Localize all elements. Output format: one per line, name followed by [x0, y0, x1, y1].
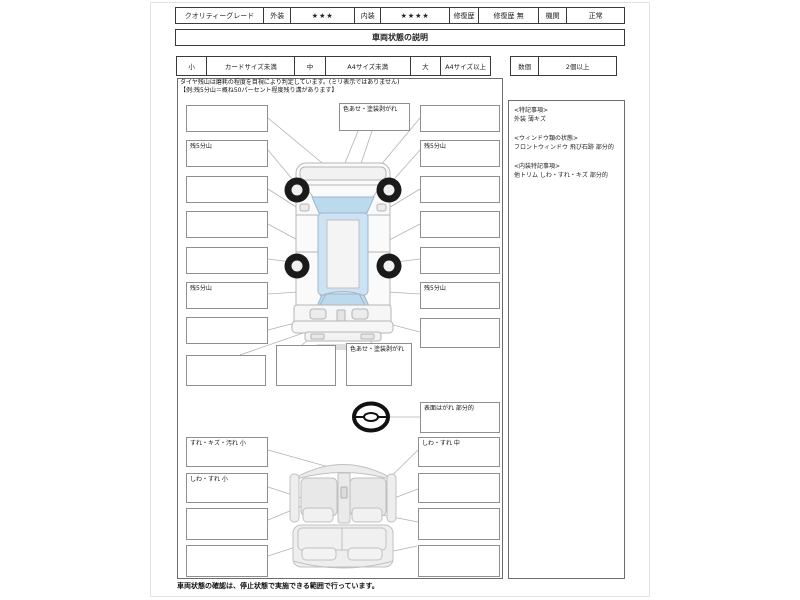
exterior-bottom-paint-box: 色あせ・塗装剥がれ — [346, 343, 412, 386]
special-notes-panel: <特記事項> 外装 薄キズ <ウィンドウ類の状態> フロントウィンドウ 飛び石跡… — [508, 100, 625, 579]
interior-right-box-3 — [418, 508, 500, 540]
footer-note: 車両状態の確認は、停止状態で実施できる範囲で行っています。 — [177, 581, 379, 591]
legend-large-desc: A4サイズ以上 — [441, 57, 490, 75]
size-legend: 小 カードサイズ未満 中 A4サイズ未満 大 A4サイズ以上 — [176, 56, 491, 76]
interior-left-box-4 — [186, 545, 268, 577]
notes-section-title: <特記事項> — [514, 107, 619, 115]
engine-label: 機関 — [539, 8, 567, 23]
exterior-label: 外装 — [264, 8, 291, 23]
page-title: 車両状態の説明 — [175, 29, 625, 46]
exterior-top-paint-box: 色あせ・塗装剥がれ — [339, 103, 410, 131]
repair-history-value: 修復歴 無 — [479, 8, 539, 23]
exterior-left-box-7 — [186, 317, 268, 344]
exterior-bottom-left-box — [186, 355, 266, 386]
legend-medium-desc: A4サイズ未満 — [326, 57, 411, 75]
legend-small-desc: カードサイズ未満 — [207, 57, 295, 75]
interior-left-box-2: しわ・すれ 小 — [186, 473, 268, 503]
notes-section-body: 他トリム しわ・すれ・キズ 部分的 — [514, 172, 619, 180]
notes-section-title: <ウィンドウ類の状態> — [514, 135, 619, 143]
exterior-right-box-6: 残5分山 — [420, 282, 500, 309]
exterior-right-box-1 — [420, 105, 500, 132]
exterior-rating: ★★★ — [291, 8, 355, 23]
interior-left-box-3 — [186, 508, 268, 540]
repair-history-label: 修復歴 — [450, 8, 479, 23]
notes-section-body: フロントウィンドウ 飛び石跡 部分的 — [514, 144, 619, 152]
tire-note-line1: タイヤ残山は磨耗の程度を目視により判定しています。(ミリ表示ではありません) — [180, 79, 500, 87]
interior-right-box-1: しわ・すれ 中 — [418, 437, 500, 467]
exterior-left-box-6: 残5分山 — [186, 282, 268, 309]
exterior-left-box-4 — [186, 211, 268, 238]
exterior-bottom-mid-box — [276, 345, 336, 386]
count-legend: 数個 2個以上 — [510, 56, 617, 76]
exterior-right-box-5 — [420, 247, 500, 274]
interior-left-box-1: すれ・キズ・汚れ 小 — [186, 437, 268, 467]
vehicle-condition-report: クオリティーグレード 外装 ★★★ 内装 ★★★★ 修復歴 修復歴 無 機関 正… — [0, 0, 800, 600]
notes-section-body: 外装 薄キズ — [514, 116, 619, 124]
legend-medium: 中 — [295, 57, 325, 75]
exterior-right-box-2: 残5分山 — [420, 140, 500, 167]
quality-grade-label: クオリティーグレード — [176, 8, 264, 23]
steering-wheel-note-box: 表面はがれ 部分的 — [420, 402, 500, 433]
interior-label: 内装 — [355, 8, 381, 23]
interior-right-box-2 — [418, 473, 500, 503]
tire-note-line2: 【例:残5分山＝概ね50パーセント程度残り溝があります】 — [180, 87, 500, 95]
exterior-left-box-1 — [186, 105, 268, 132]
exterior-right-box-7 — [420, 318, 500, 348]
exterior-right-box-4 — [420, 211, 500, 238]
legend-large: 大 — [411, 57, 441, 75]
exterior-left-box-3 — [186, 176, 268, 203]
notes-section-title: <内装特記事項> — [514, 163, 619, 171]
engine-value: 正常 — [567, 8, 624, 23]
exterior-left-box-5 — [186, 247, 268, 274]
legend-small: 小 — [177, 57, 207, 75]
interior-rating: ★★★★ — [381, 8, 449, 23]
interior-right-box-4 — [418, 545, 500, 577]
tire-note: タイヤ残山は磨耗の程度を目視により判定しています。(ミリ表示ではありません) 【… — [180, 79, 500, 95]
legend-count-desc: 2個以上 — [539, 57, 616, 75]
legend-count: 数個 — [511, 57, 539, 75]
exterior-right-box-3 — [420, 176, 500, 203]
exterior-left-box-2: 残5分山 — [186, 140, 268, 167]
grade-header: クオリティーグレード 外装 ★★★ 内装 ★★★★ 修復歴 修復歴 無 機関 正… — [175, 7, 625, 24]
